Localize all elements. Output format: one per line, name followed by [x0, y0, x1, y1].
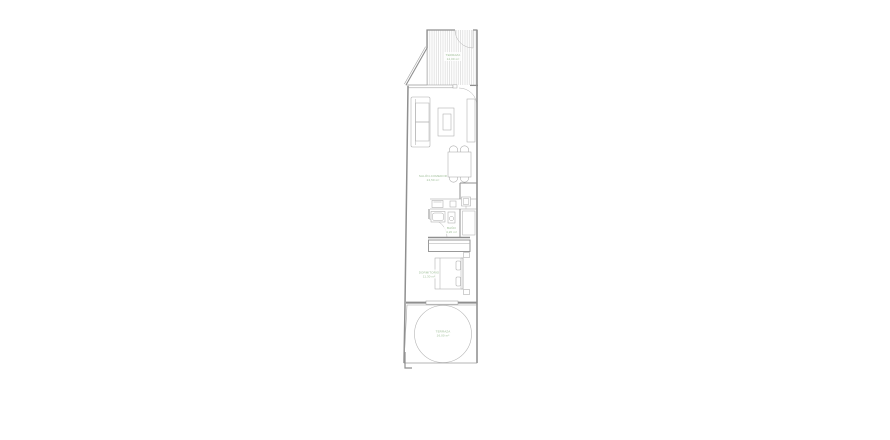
dining-set [448, 146, 471, 182]
coffee-table [438, 108, 454, 136]
label-living: SALÓN-COMEDOR 24,50 m² [419, 173, 448, 182]
shower-shaft [463, 211, 476, 235]
bedroom-bottom-wall [406, 301, 478, 304]
bedroom-window[interactable] [426, 301, 458, 304]
bottom-left-wall-corner [405, 352, 412, 368]
toilet [448, 212, 455, 223]
svg-text:24,50 m²: 24,50 m² [427, 178, 440, 182]
room-area: 4,20 m² [446, 230, 457, 234]
terrace-slanted-wall-outer [404, 47, 425, 84]
terrace-top [404, 30, 477, 85]
label-terrace-top: TERRAZA 12,00 m² [444, 52, 462, 61]
sofa [411, 97, 430, 147]
kitchen [430, 183, 477, 209]
label-bathroom: BAÑO 4,20 m² [444, 225, 459, 234]
bedroom [406, 253, 478, 305]
door-post [453, 85, 457, 88]
closet [429, 240, 471, 252]
floor-plan: TERRAZA 12,00 m² SALÓN-COMEDOR 24,50 m² … [398, 22, 484, 374]
sliding-window[interactable] [408, 85, 453, 88]
oven-appliance [432, 201, 443, 208]
page-canvas: TERRAZA 12,00 m² SALÓN-COMEDOR 24,50 m² … [0, 0, 890, 440]
room-area: 11,30 m² [423, 274, 435, 278]
kitchen-sink [462, 197, 471, 209]
room-labels: TERRAZA 12,00 m² SALÓN-COMEDOR 24,50 m² … [419, 52, 462, 338]
room-area: 16,00 m² [437, 333, 450, 337]
label-bedroom: DORMITORIO 11,30 m² [419, 270, 440, 279]
terrace-slanted-wall [406, 48, 427, 85]
dining-table [448, 152, 471, 177]
nightstand [464, 253, 470, 258]
svg-text:11,30 m²: 11,30 m² [423, 274, 435, 278]
nightstand [464, 290, 470, 295]
label-terrace-bottom: TERRAZA 16,00 m² [435, 329, 451, 338]
svg-text:4,20 m²: 4,20 m² [446, 230, 457, 234]
svg-text:12,00 m²: 12,00 m² [447, 57, 460, 61]
tv-unit [467, 99, 475, 142]
room-area: 24,50 m² [427, 178, 440, 182]
room-area: 12,00 m² [447, 57, 460, 61]
svg-text:16,00 m²: 16,00 m² [437, 333, 450, 337]
pillow [456, 261, 461, 270]
living-room [411, 97, 475, 182]
pillow [456, 277, 461, 286]
bathtub [431, 212, 445, 223]
cooktop [450, 201, 456, 207]
